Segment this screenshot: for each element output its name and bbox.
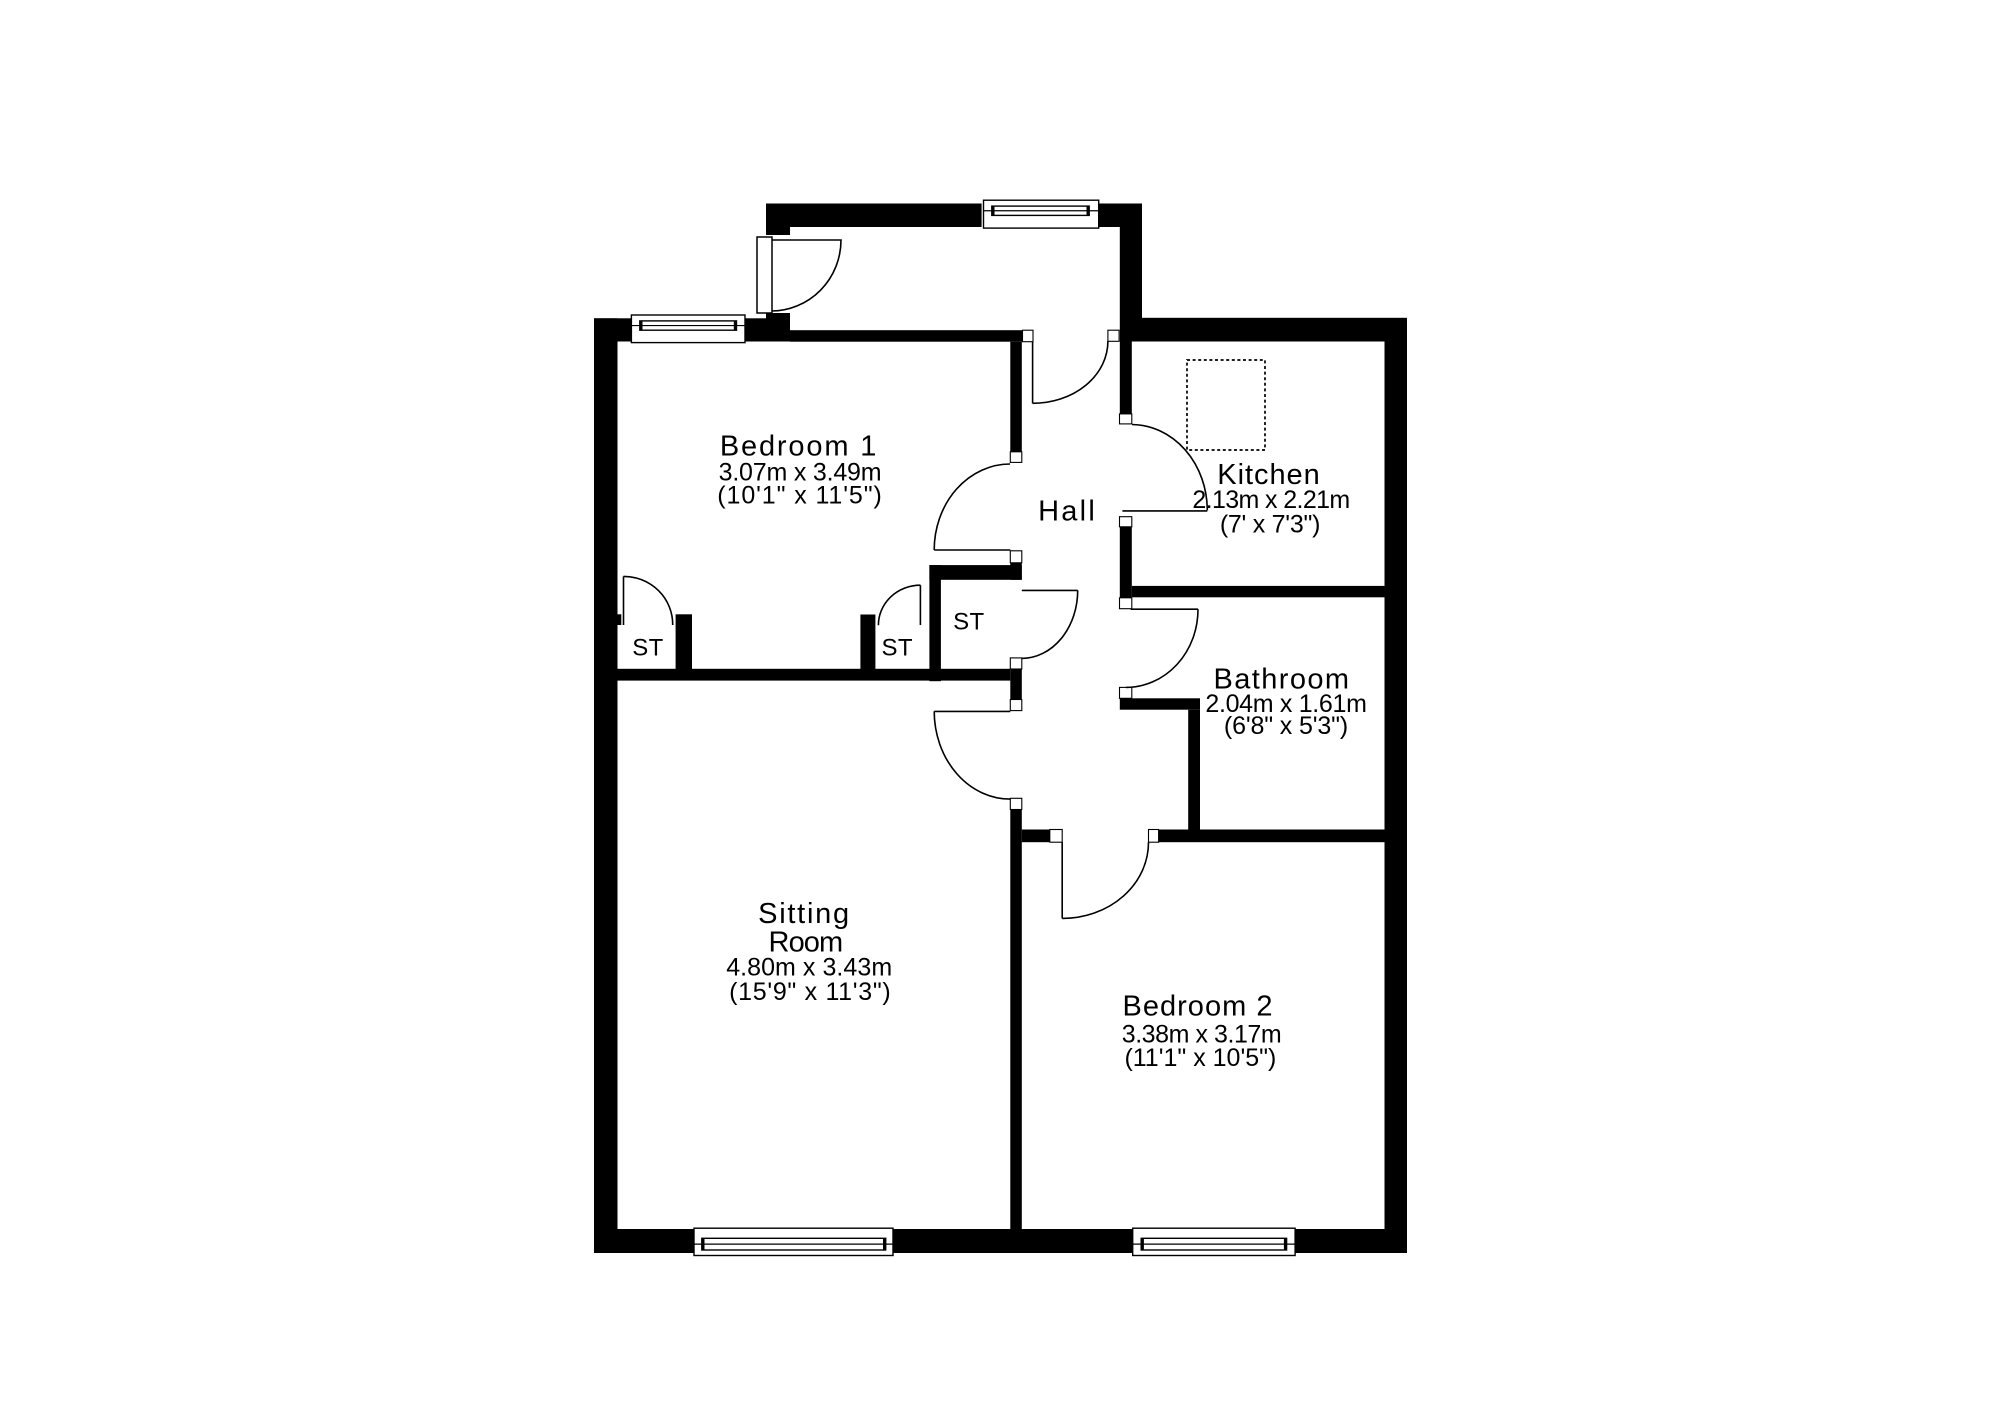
svg-text:(6'8" x 5'3"): (6'8" x 5'3") — [1224, 712, 1348, 740]
svg-text:(10'1" x 11'5"): (10'1" x 11'5") — [717, 482, 882, 510]
svg-text:(7' x 7'3"): (7' x 7'3") — [1220, 510, 1320, 538]
svg-text:ST: ST — [632, 635, 663, 662]
svg-text:ST: ST — [953, 609, 984, 636]
svg-text:Hall: Hall — [1038, 496, 1097, 528]
svg-text:Bedroom 2: Bedroom 2 — [1122, 991, 1273, 1023]
svg-text:(11'1" x 10'5"): (11'1" x 10'5") — [1124, 1044, 1276, 1072]
svg-text:ST: ST — [882, 635, 913, 662]
svg-text:(15'9" x 11'3"): (15'9" x 11'3") — [729, 978, 891, 1006]
svg-text:Sitting: Sitting — [758, 898, 851, 930]
